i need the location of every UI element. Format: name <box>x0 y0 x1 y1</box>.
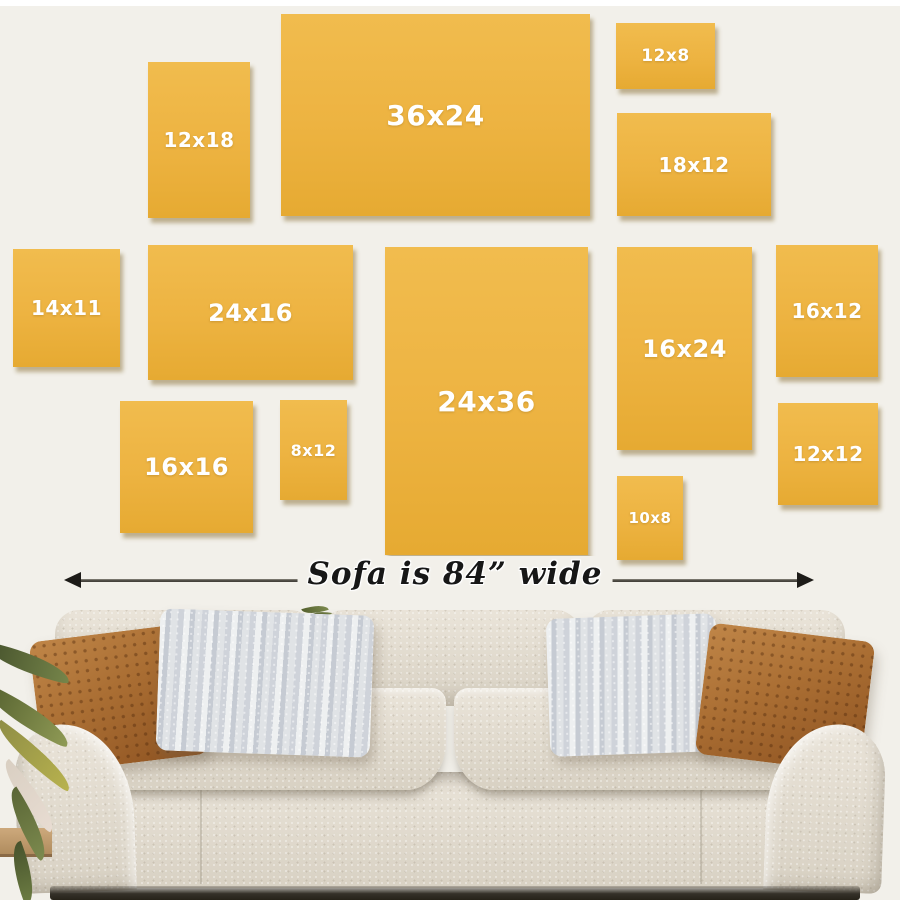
pillow-left-inner <box>156 608 375 757</box>
pillow-right-inner <box>546 613 721 757</box>
skirt-seam <box>700 780 702 884</box>
floor-patch <box>0 828 52 857</box>
skirt-seam <box>200 780 202 884</box>
canvas-size-guide-image: 12x1836x2412x818x1214x1124x1624x3616x241… <box>0 0 900 900</box>
sofa-shadow <box>50 886 860 900</box>
sofa <box>0 0 900 900</box>
